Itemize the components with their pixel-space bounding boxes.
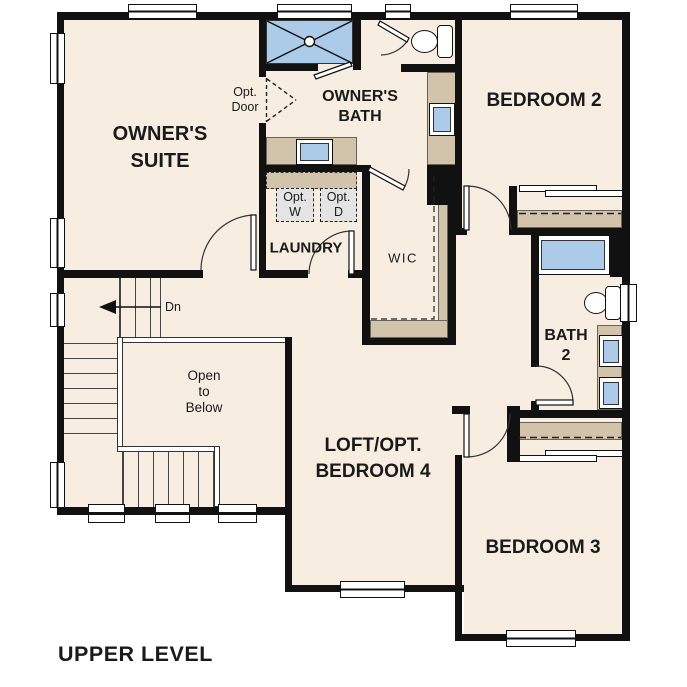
sink-basin [433,107,451,132]
window-icon [155,504,190,523]
sink-basin [300,143,329,161]
opt-dryer-label: Opt. [327,190,351,204]
label-bath2: BATH 2 [544,326,587,366]
wall-segment [353,12,361,70]
toilet-tank [605,286,621,320]
bedroom3-closet-sliding-door [519,455,597,462]
window-icon [50,33,65,84]
bedroom2-closet-sliding-door [545,190,624,197]
wall-segment [448,205,456,345]
sink-basin [603,340,619,363]
wall-segment [285,337,292,592]
floor-plan: Opt. W Opt. D [0,0,687,687]
opt-washer-label: Opt. [283,190,307,204]
wall-segment [455,228,467,235]
label-stairs-dn: Dn [165,300,181,314]
window-icon [50,293,65,327]
label-open-to-below: Open to Below [186,368,223,416]
wall-segment [507,406,520,462]
window-icon [510,4,578,19]
bedroom3-closet-shelf [517,422,622,440]
stairs-left-run [64,343,117,438]
label-owners-bath: OWNER'S BATH [322,87,398,127]
window-icon [50,462,65,508]
label-laundry: LAUNDRY [270,240,343,257]
exterior-notch [455,641,687,687]
label-owners-suite: OWNER'S SUITE [113,121,208,175]
stairs-bottom-run [122,452,216,507]
wall-segment [362,338,456,345]
wall-segment [452,406,470,414]
label-opt-door: Opt. Door [231,85,258,115]
label-bedroom2: BEDROOM 2 [486,90,601,112]
window-icon [128,4,197,19]
wall-segment [362,165,370,345]
wic-shelf-bottom [370,320,448,338]
opt-dryer-label: D [334,205,343,219]
sink-basin [603,382,619,405]
opt-dryer-box: Opt. D [320,188,357,222]
bathtub-basin [541,240,605,270]
stair-railing [117,337,292,343]
shower-pan-icon [266,20,353,64]
window-icon [620,284,637,322]
window-icon [277,4,352,19]
opt-washer-label: W [289,205,301,219]
exterior-notch [285,592,464,687]
wall-segment [348,270,370,278]
window-icon [218,504,257,523]
label-wic: WIC [388,251,418,266]
wall-segment [520,410,630,418]
wall-segment [509,186,517,235]
window-icon [50,218,65,268]
label-loft-bedroom4: LOFT/OPT. BEDROOM 4 [315,433,430,485]
toilet-icon [411,30,438,53]
window-icon [340,581,405,598]
laundry-counter [266,172,357,189]
bedroom2-closet-shelf [517,210,622,228]
window-icon [385,4,411,19]
wall-segment [259,123,266,278]
wall-segment [259,64,318,71]
window-icon [88,504,125,523]
wall-segment [531,228,539,367]
stair-railing [117,446,220,452]
wall-segment [57,270,203,278]
wall-segment [622,12,630,641]
stair-railing [117,337,123,452]
label-bedroom3: BEDROOM 3 [485,537,600,559]
opt-washer-box: Opt. W [276,188,314,222]
wall-segment [427,165,457,205]
wall-segment [455,455,462,641]
window-icon [506,630,576,647]
wall-segment [401,64,462,72]
wall-segment [259,165,371,172]
toilet-tank [437,25,453,58]
wall-segment [259,270,308,278]
stairs-top-run [119,278,161,337]
plan-title: UPPER LEVEL [58,642,213,667]
stair-railing [214,446,220,507]
wall-segment [610,230,622,277]
